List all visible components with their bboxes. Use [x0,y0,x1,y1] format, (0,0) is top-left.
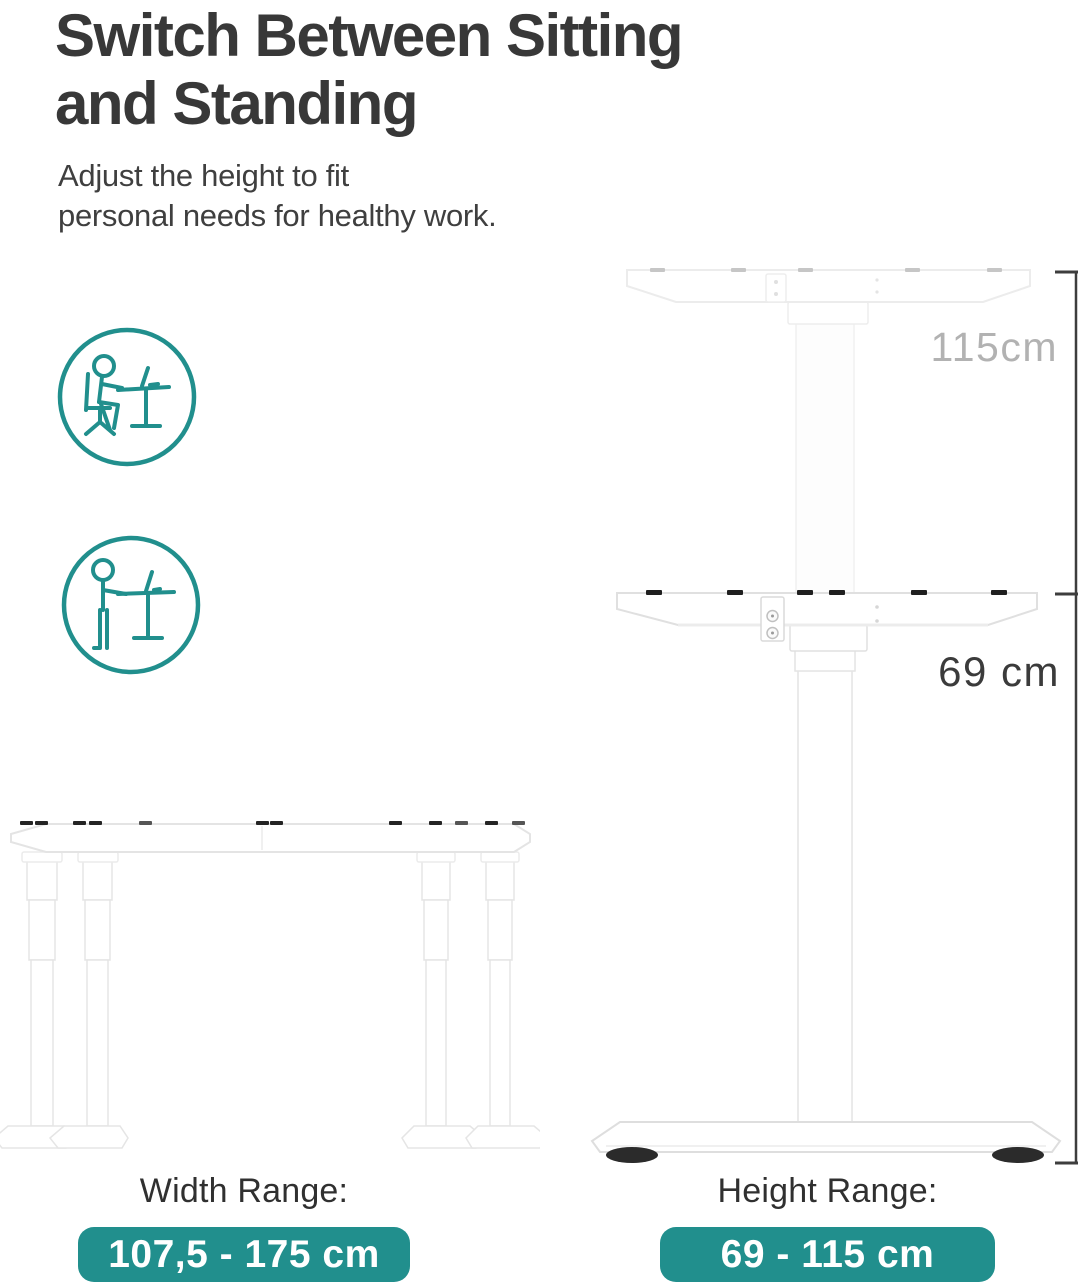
person-standing-at-desk-icon [56,530,206,680]
standing-height-label: 115cm [930,324,1058,371]
height-dimension-line [1055,272,1078,1163]
height-range-badge: 69 - 115 cm [660,1227,995,1282]
page-title: Switch Between Sitting and Standing [55,2,682,138]
width-adjustable-frame-illustration [0,810,540,1160]
standing-figure [93,560,126,648]
icon-circle [60,330,194,464]
icon-circle [64,538,198,672]
height-adjustable-frame-illustration [590,260,1090,1175]
sitting-desk [118,368,169,426]
foot-pad-right [992,1147,1044,1163]
title-line-1: Switch Between Sitting [55,2,682,70]
sitting-figure [86,356,122,434]
width-range-badge: 107,5 - 175 cm [78,1227,410,1282]
crossbar [617,593,1037,625]
top-beam [11,824,530,852]
foot-pad-left [606,1147,658,1163]
sitting-height-label: 69 cm [938,648,1060,696]
subtitle-line-1: Adjust the height to fit [58,156,496,196]
person-sitting-at-desk-icon [52,322,202,472]
frame-at-standing-height [627,268,1030,595]
product-infographic: Switch Between Sitting and Standing Adju… [0,0,1090,1287]
desk-foot [592,1122,1060,1152]
frame-legs [0,853,540,1148]
width-range-caption: Width Range: [78,1172,410,1211]
leg-brackets [22,852,519,862]
title-line-2: and Standing [55,70,682,138]
page-subtitle: Adjust the height to fit personal needs … [58,156,496,236]
subtitle-line-2: personal needs for healthy work. [58,196,496,236]
height-range-caption: Height Range: [660,1172,995,1211]
standing-desk [118,572,174,638]
